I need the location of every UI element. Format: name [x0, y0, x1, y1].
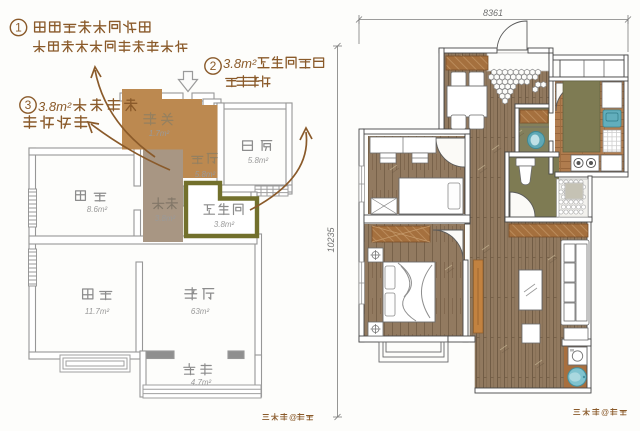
svg-text:4.7m²: 4.7m²: [191, 378, 212, 387]
svg-text:3.8m²: 3.8m²: [38, 99, 72, 114]
svg-text:11.7m²: 11.7m²: [85, 307, 110, 316]
svg-text:5.8m²: 5.8m²: [195, 170, 216, 179]
svg-text:8361: 8361: [483, 8, 503, 18]
svg-text:5.8m²: 5.8m²: [248, 156, 269, 165]
svg-text:3.8m²: 3.8m²: [223, 56, 257, 71]
svg-text:@: @: [289, 413, 297, 422]
svg-text:1.7m²: 1.7m²: [149, 129, 170, 138]
svg-text:8.6m²: 8.6m²: [87, 205, 108, 214]
svg-text:3: 3: [25, 98, 32, 112]
svg-text:3.8m²: 3.8m²: [155, 214, 176, 223]
svg-text:10235: 10235: [326, 226, 336, 252]
svg-text:2: 2: [210, 59, 217, 73]
svg-text:@: @: [601, 408, 609, 417]
svg-text:63m²: 63m²: [191, 307, 210, 316]
svg-text:1: 1: [15, 21, 22, 35]
svg-text:3.8m²: 3.8m²: [214, 220, 235, 229]
